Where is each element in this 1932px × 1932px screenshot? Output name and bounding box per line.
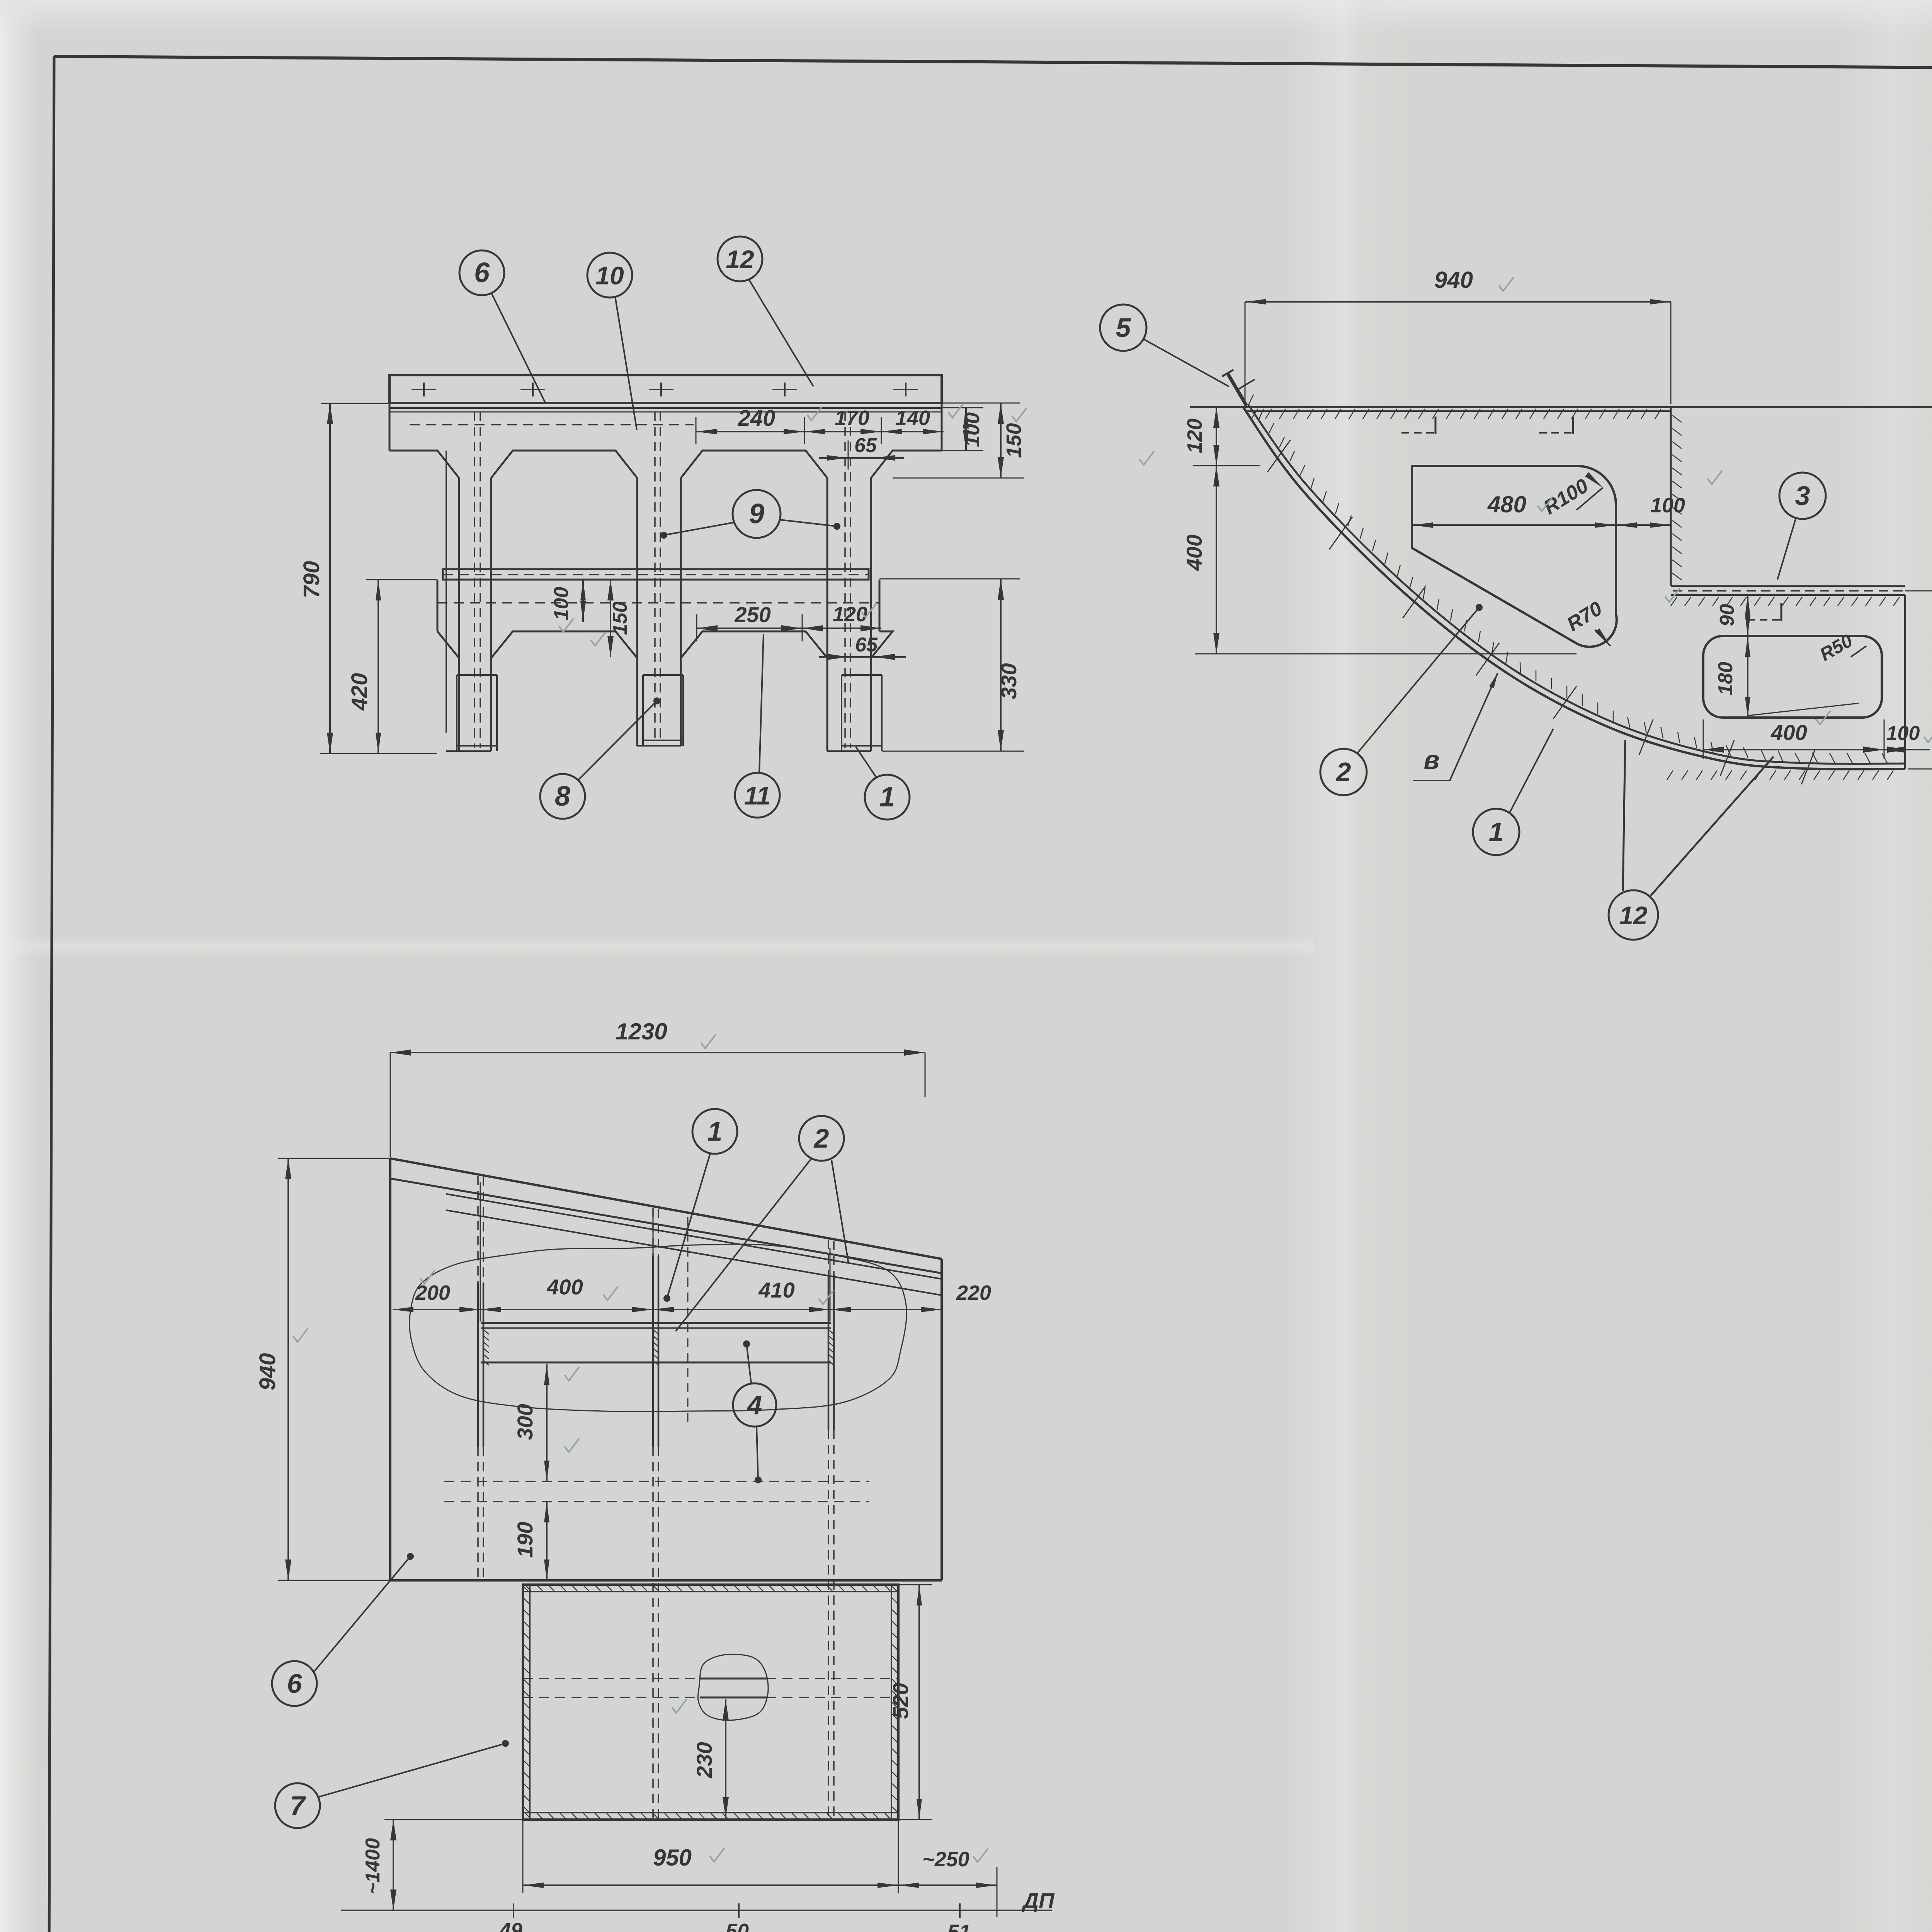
svg-text:300: 300	[513, 1404, 537, 1440]
svg-text:220: 220	[956, 1281, 991, 1304]
svg-text:4: 4	[747, 1390, 762, 1420]
svg-text:410: 410	[758, 1278, 794, 1302]
svg-text:~250: ~250	[922, 1848, 969, 1871]
svg-text:200: 200	[415, 1281, 450, 1304]
svg-text:520: 520	[888, 1683, 913, 1719]
svg-text:230: 230	[692, 1742, 716, 1778]
svg-text:49: 49	[499, 1919, 522, 1932]
svg-text:180: 180	[1714, 662, 1737, 696]
svg-text:10: 10	[595, 261, 624, 290]
svg-text:940: 940	[1434, 267, 1473, 293]
svg-text:950: 950	[653, 1845, 692, 1871]
svg-text:11: 11	[744, 781, 771, 810]
svg-text:65: 65	[854, 434, 877, 457]
svg-text:ДП: ДП	[1022, 1888, 1055, 1913]
svg-text:100: 100	[961, 412, 984, 447]
svg-text:9: 9	[749, 498, 764, 529]
svg-text:940: 940	[255, 1353, 280, 1391]
svg-text:400: 400	[1770, 720, 1807, 745]
svg-text:480: 480	[1487, 492, 1526, 517]
svg-text:R100: R100	[1540, 474, 1592, 519]
svg-text:140: 140	[895, 406, 930, 430]
svg-text:240: 240	[738, 406, 776, 431]
svg-text:51: 51	[947, 1920, 971, 1932]
svg-text:~1400: ~1400	[362, 1838, 384, 1895]
svg-text:150: 150	[1002, 423, 1026, 458]
svg-text:6: 6	[287, 1668, 303, 1699]
svg-text:2: 2	[813, 1123, 829, 1153]
svg-text:1: 1	[1489, 817, 1504, 847]
svg-text:330: 330	[997, 663, 1021, 699]
svg-text:2: 2	[1335, 757, 1351, 787]
svg-text:120: 120	[1183, 418, 1206, 453]
svg-text:1: 1	[879, 782, 895, 813]
svg-text:420: 420	[347, 673, 372, 711]
svg-text:12: 12	[726, 245, 754, 274]
svg-text:100: 100	[550, 587, 573, 621]
svg-text:1: 1	[707, 1116, 723, 1146]
svg-text:250: 250	[734, 602, 770, 627]
svg-text:400: 400	[1182, 534, 1206, 571]
svg-text:3: 3	[1795, 481, 1810, 511]
svg-text:1230: 1230	[616, 1019, 667, 1044]
svg-text:150: 150	[609, 602, 631, 635]
svg-text:8: 8	[555, 781, 570, 812]
svg-text:в: в	[1423, 745, 1439, 775]
svg-text:50: 50	[726, 1920, 749, 1932]
svg-text:190: 190	[513, 1522, 537, 1558]
svg-text:5: 5	[1116, 313, 1131, 343]
svg-text:170: 170	[835, 406, 869, 430]
svg-text:65: 65	[855, 634, 878, 656]
svg-text:100: 100	[1886, 722, 1920, 745]
svg-text:400: 400	[546, 1275, 583, 1299]
svg-text:12: 12	[1619, 901, 1648, 930]
svg-text:790: 790	[299, 561, 324, 599]
svg-text:7: 7	[290, 1791, 306, 1821]
svg-text:6: 6	[474, 257, 490, 288]
svg-text:90: 90	[1716, 604, 1738, 626]
